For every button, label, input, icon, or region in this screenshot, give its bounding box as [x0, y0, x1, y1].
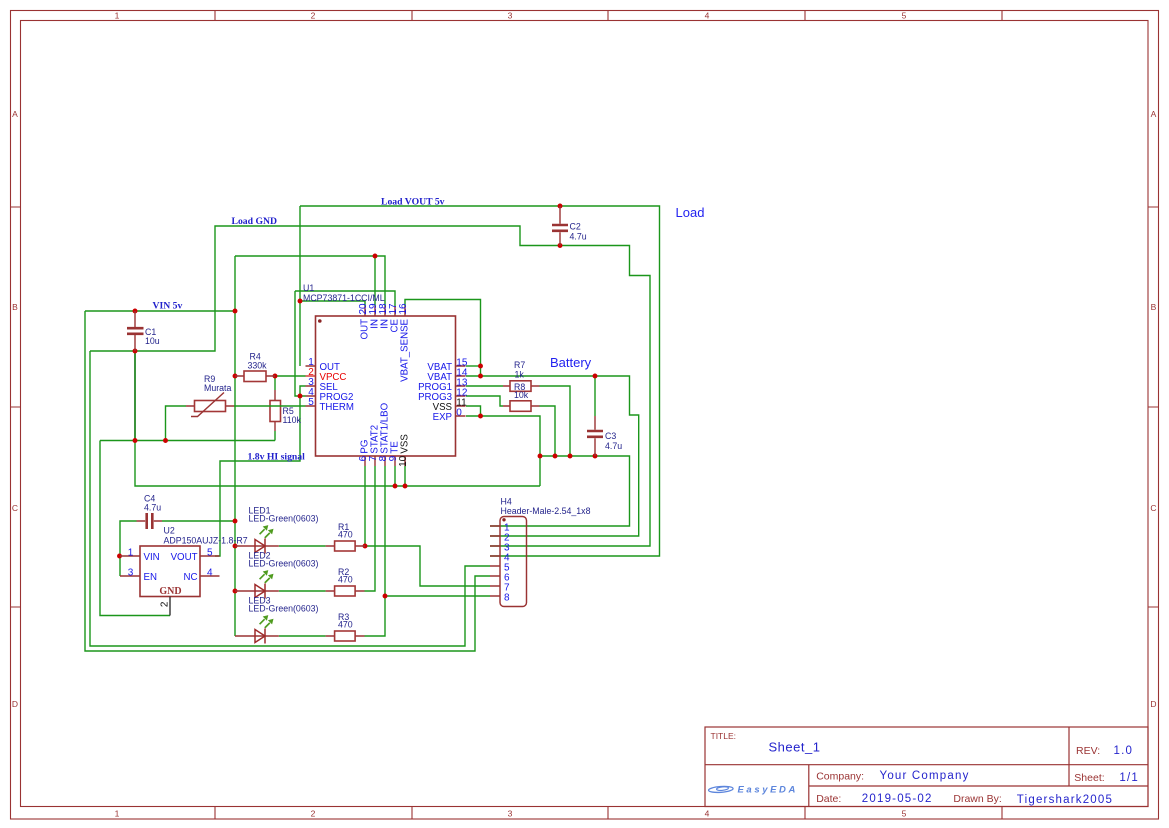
svg-text:B: B [12, 302, 18, 312]
svg-text:Tigershark2005: Tigershark2005 [1017, 794, 1113, 806]
svg-text:2: 2 [160, 601, 171, 607]
svg-text:3: 3 [508, 11, 513, 21]
svg-text:4.7u: 4.7u [144, 503, 161, 513]
svg-text:LED-Green(0603): LED-Green(0603) [249, 559, 319, 569]
svg-text:8: 8 [504, 593, 510, 604]
svg-text:THERM: THERM [320, 402, 354, 413]
svg-text:VIN: VIN [144, 552, 160, 563]
svg-text:Load GND: Load GND [232, 216, 278, 227]
svg-text:10: 10 [398, 455, 409, 467]
svg-text:C: C [12, 503, 18, 513]
svg-text:110k: 110k [283, 415, 302, 425]
svg-text:EXP: EXP [433, 412, 452, 423]
svg-text:VIN 5v: VIN 5v [153, 301, 183, 312]
svg-text:16: 16 [398, 303, 409, 315]
svg-text:1: 1 [115, 11, 120, 21]
svg-text:4: 4 [705, 809, 710, 819]
svg-text:330k: 330k [248, 361, 268, 371]
svg-text:Murata: Murata [204, 383, 231, 393]
svg-text:Load: Load [676, 205, 705, 220]
svg-text:LED-Green(0603): LED-Green(0603) [249, 514, 319, 524]
svg-text:EN: EN [144, 572, 157, 583]
svg-text:ADP150AUJZ-1.8-R7: ADP150AUJZ-1.8-R7 [164, 536, 248, 546]
svg-text:4: 4 [705, 11, 710, 21]
svg-text:C2: C2 [570, 222, 581, 232]
svg-text:D: D [12, 699, 18, 709]
svg-text:VSS: VSS [400, 434, 411, 454]
svg-text:3: 3 [508, 809, 513, 819]
svg-text:Header-Male-2.54_1x8: Header-Male-2.54_1x8 [501, 506, 591, 516]
svg-text:5: 5 [902, 809, 907, 819]
svg-text:Load VOUT 5v: Load VOUT 5v [381, 197, 445, 208]
svg-text:1.0: 1.0 [1114, 745, 1134, 757]
svg-text:Your Company: Your Company [880, 770, 970, 782]
svg-text:Battery: Battery [550, 355, 592, 370]
svg-text:Sheet:: Sheet: [1074, 772, 1104, 784]
svg-text:Sheet_1: Sheet_1 [769, 740, 821, 755]
svg-text:B: B [1151, 302, 1157, 312]
svg-text:REV:: REV: [1076, 745, 1100, 757]
svg-text:2: 2 [311, 11, 316, 21]
svg-text:5: 5 [902, 11, 907, 21]
svg-text:GND: GND [159, 586, 181, 597]
svg-text:2: 2 [311, 809, 316, 819]
svg-text:1: 1 [128, 547, 134, 558]
svg-text:Company:: Company: [816, 771, 864, 783]
svg-text:MCP73871-1CCI/ML: MCP73871-1CCI/ML [303, 293, 385, 303]
svg-text:4.7u: 4.7u [605, 441, 622, 451]
svg-text:470: 470 [338, 575, 353, 585]
svg-text:1: 1 [115, 809, 120, 819]
svg-text:C3: C3 [605, 431, 616, 441]
svg-text:2019-05-02: 2019-05-02 [862, 793, 933, 805]
svg-text:470: 470 [338, 620, 353, 630]
svg-text:TITLE:: TITLE: [711, 731, 737, 741]
svg-text:EasyEDA: EasyEDA [738, 785, 798, 796]
svg-text:5: 5 [308, 397, 314, 408]
svg-text:Drawn By:: Drawn By: [953, 793, 1001, 805]
svg-text:4.7u: 4.7u [570, 232, 587, 242]
svg-text:10k: 10k [514, 390, 529, 400]
svg-text:H4: H4 [501, 497, 512, 507]
svg-text:A: A [12, 109, 18, 119]
svg-text:NC: NC [184, 572, 198, 583]
svg-text:5: 5 [207, 547, 213, 558]
svg-text:C: C [1150, 503, 1156, 513]
svg-text:1/1: 1/1 [1119, 772, 1139, 784]
svg-text:VOUT: VOUT [171, 552, 198, 563]
svg-text:U1: U1 [303, 283, 314, 293]
svg-text:10u: 10u [145, 336, 160, 346]
svg-text:1.8v HI signal: 1.8v HI signal [248, 452, 306, 463]
svg-text:4: 4 [207, 567, 213, 578]
svg-text:0: 0 [456, 407, 462, 418]
svg-text:A: A [1151, 109, 1157, 119]
svg-text:3: 3 [128, 567, 134, 578]
svg-text:Date:: Date: [816, 793, 841, 805]
svg-text:LED-Green(0603): LED-Green(0603) [249, 604, 319, 614]
svg-text:D: D [1150, 699, 1156, 709]
svg-text:VBAT_SENSE: VBAT_SENSE [400, 318, 411, 381]
svg-text:1k: 1k [515, 369, 525, 379]
svg-text:U2: U2 [164, 526, 175, 536]
svg-text:470: 470 [338, 530, 353, 540]
